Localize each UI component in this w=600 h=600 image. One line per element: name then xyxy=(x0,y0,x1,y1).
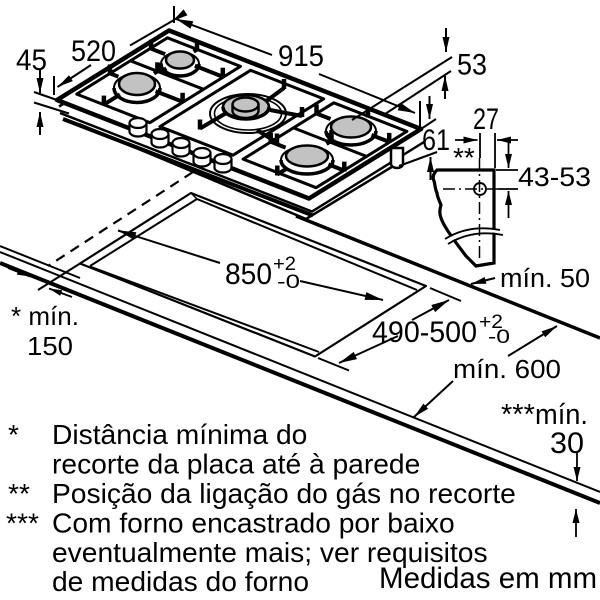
svg-text:**: ** xyxy=(453,142,475,173)
svg-text:recorte da placa até à parede: recorte da placa até à parede xyxy=(52,448,420,480)
svg-text:Medidas em mm: Medidas em mm xyxy=(379,562,597,595)
svg-text:Posição da ligação do gás no r: Posição da ligação do gás no recorte xyxy=(52,477,516,509)
svg-text:***: *** xyxy=(6,507,39,539)
svg-text:-0: -0 xyxy=(488,327,510,348)
svg-text:43-53: 43-53 xyxy=(518,162,591,192)
svg-text:de medidas do forno: de medidas do forno xyxy=(52,565,309,597)
svg-text:520: 520 xyxy=(71,35,116,68)
svg-text:490-500: 490-500 xyxy=(372,316,477,349)
svg-text:mín. 50: mín. 50 xyxy=(500,265,590,293)
svg-text:***: *** xyxy=(501,399,535,431)
svg-text:30: 30 xyxy=(550,427,584,460)
svg-text:Distância mínima do: Distância mínima do xyxy=(52,418,307,450)
svg-text:850: 850 xyxy=(225,258,272,291)
svg-text:61: 61 xyxy=(422,124,450,157)
svg-text:27: 27 xyxy=(473,103,499,136)
svg-text:Com forno encastrado por baixo: Com forno encastrado por baixo xyxy=(52,507,455,539)
svg-text:**: ** xyxy=(8,477,30,509)
svg-text:150: 150 xyxy=(27,331,73,361)
svg-text:915: 915 xyxy=(278,40,324,73)
svg-text:*: * xyxy=(8,418,19,450)
svg-text:* mín.: * mín. xyxy=(11,301,79,331)
svg-text:-0: -0 xyxy=(277,272,300,293)
svg-text:45: 45 xyxy=(16,44,47,77)
svg-text:53: 53 xyxy=(457,49,487,82)
svg-text:mín. 600: mín. 600 xyxy=(453,356,561,384)
